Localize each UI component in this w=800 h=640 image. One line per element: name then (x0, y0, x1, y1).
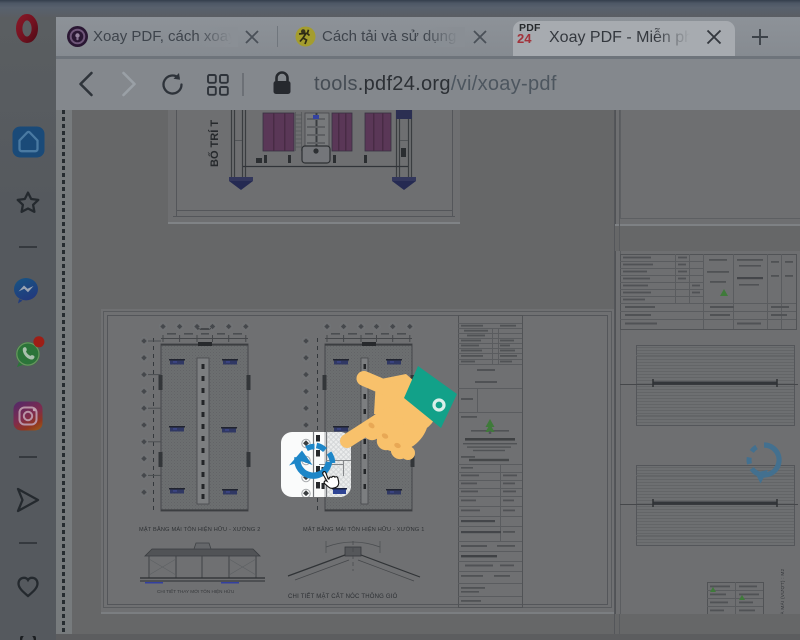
svg-text:CHI TIẾT THAY MỚI TÔN HIỆN HỮU: CHI TIẾT THAY MỚI TÔN HIỆN HỮU (157, 587, 234, 594)
svg-text:CHI TIẾT MẶT CẮT NÓC THÔNG GIÓ: CHI TIẾT MẶT CẮT NÓC THÔNG GIÓ (288, 592, 398, 600)
svg-text:MẶT BẰNG MÁI TÔN HIỆN HỮU - XƯ: MẶT BẰNG MÁI TÔN HIỆN HỮU - XƯỞNG 2 (139, 525, 261, 533)
svg-text:VÀ MÁI (VƯỢT) : M2: VÀ MÁI (VƯỢT) : M2 (779, 568, 786, 614)
svg-text:BỐ TRÍ T: BỐ TRÍ T (207, 120, 221, 167)
svg-text:MẶT BẰNG MÁI TÔN HIỆN HỮU - XƯ: MẶT BẰNG MÁI TÔN HIỆN HỮU - XƯỞNG 1 (303, 525, 425, 533)
